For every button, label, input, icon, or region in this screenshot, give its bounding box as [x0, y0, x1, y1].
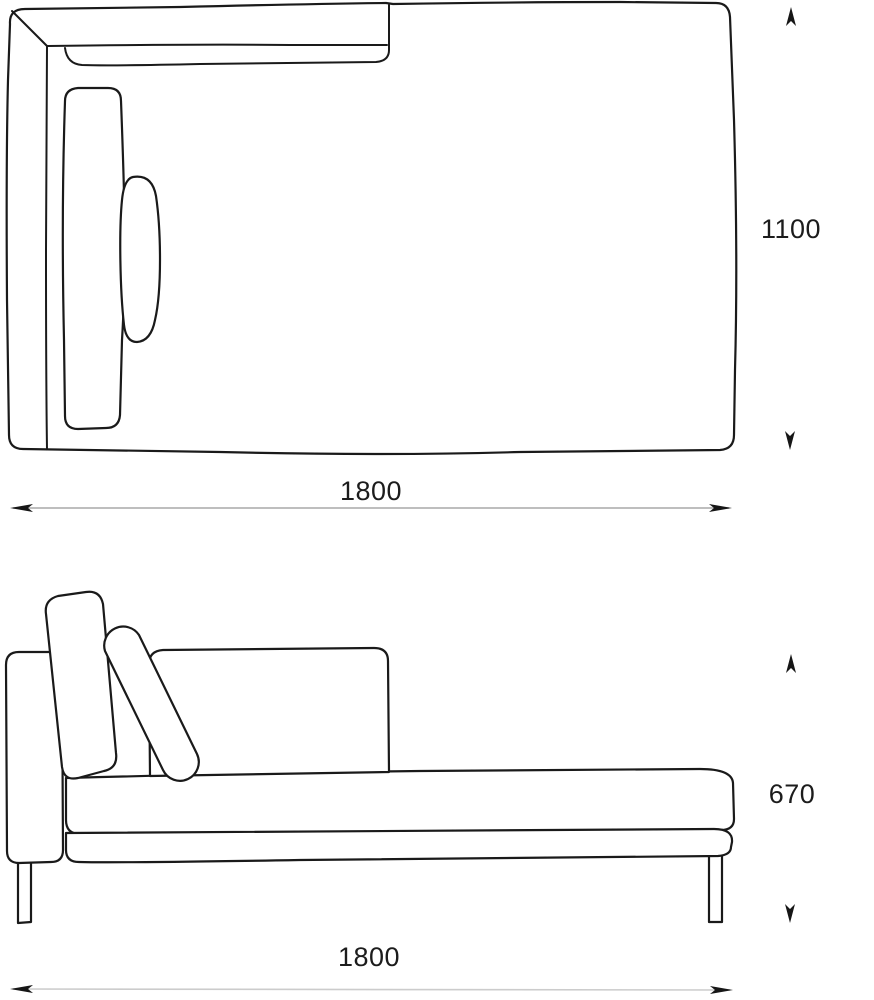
seat-base — [66, 829, 732, 862]
right-leg — [709, 854, 722, 922]
side-view-length-label: 1800 — [338, 942, 400, 972]
side-length-dim-line — [13, 989, 730, 990]
side-view-height-dimension: 670 — [769, 654, 816, 923]
arrow-up-icon — [786, 654, 796, 673]
arrow-down-icon — [785, 431, 795, 450]
back-cushion-plan — [63, 88, 125, 429]
arrow-down-icon — [785, 904, 795, 923]
headrest-pillow-plan — [120, 177, 160, 342]
left-panel-inner-edge — [46, 46, 47, 449]
top-view-depth-dimension: 1100 — [761, 7, 821, 450]
top-view-width-dimension: 1800 — [10, 476, 732, 512]
side-view-length-dimension: 1800 — [10, 942, 733, 994]
arrow-up-icon — [786, 7, 796, 26]
side-view-height-label: 670 — [769, 779, 816, 809]
top-view-width-label: 1800 — [340, 476, 402, 506]
left-leg — [18, 860, 31, 923]
side-view-drawing — [6, 592, 734, 923]
technical-drawing-canvas: 1800 1100 1800 670 — [0, 0, 874, 1000]
top-view-depth-label: 1100 — [761, 214, 821, 244]
top-view-drawing — [7, 2, 737, 454]
seat-platform — [66, 769, 734, 834]
furniture-dimension-drawing: 1800 1100 1800 670 — [0, 0, 874, 1000]
